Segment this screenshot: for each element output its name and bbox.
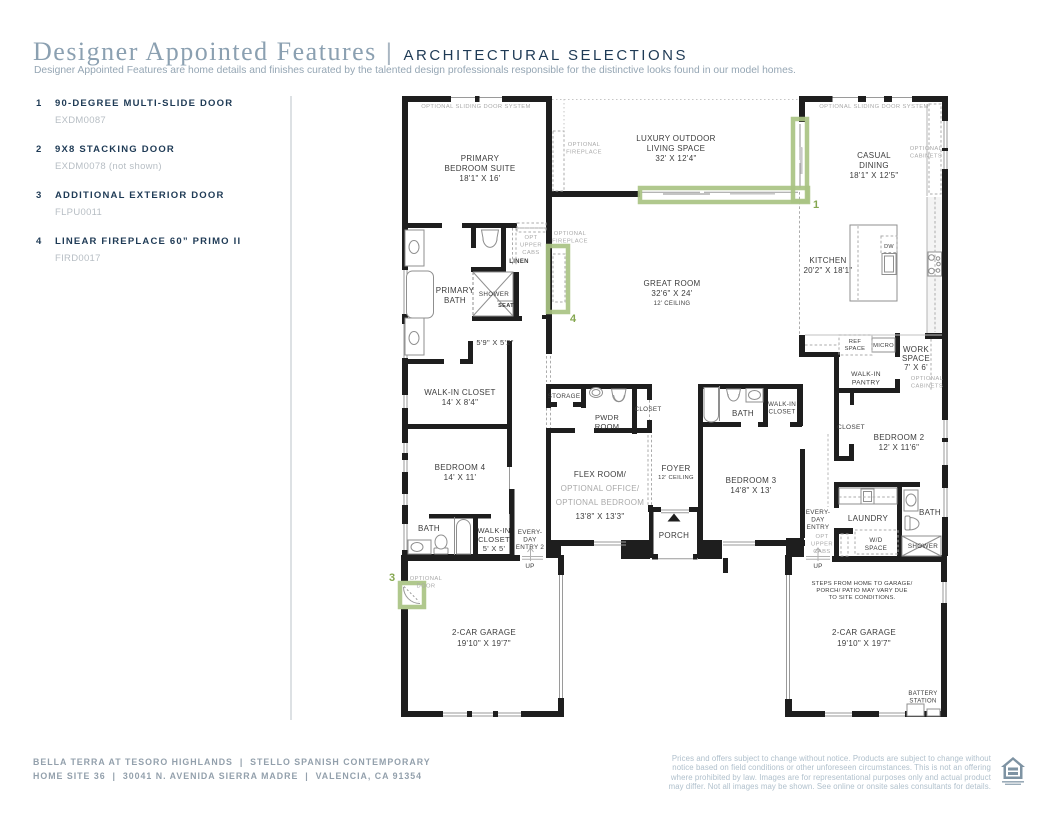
svg-text:19'10" X 19'7": 19'10" X 19'7" [837,639,891,648]
svg-text:5'9" X 5'2": 5'9" X 5'2" [476,338,513,347]
svg-text:OPTIONAL OFFICE/: OPTIONAL OFFICE/ [561,484,640,493]
svg-text:TO SITE CONDITIONS.: TO SITE CONDITIONS. [829,595,896,601]
svg-text:REF: REF [849,339,862,345]
svg-text:20'2" X 18'1": 20'2" X 18'1" [803,266,852,275]
svg-text:PORCH: PORCH [659,531,689,540]
svg-text:OPTIONAL SLIDING DOOR SYSTEM: OPTIONAL SLIDING DOOR SYSTEM [819,104,929,110]
svg-text:5' X 5': 5' X 5' [483,544,506,553]
svg-text:BATH: BATH [919,508,941,517]
svg-text:4: 4 [570,313,577,325]
svg-text:DAY: DAY [523,537,537,544]
svg-text:BEDROOM 3: BEDROOM 3 [726,476,777,485]
svg-text:SPACE: SPACE [902,354,930,363]
svg-text:SEAT: SEAT [498,303,514,309]
svg-text:DAY: DAY [811,517,825,524]
svg-text:CABS: CABS [813,549,830,555]
svg-text:EVERY-: EVERY- [518,529,543,536]
svg-text:PANTRY: PANTRY [852,380,881,387]
svg-text:2-CAR GARAGE: 2-CAR GARAGE [452,628,516,637]
svg-text:ENTRY 2: ENTRY 2 [516,544,545,551]
svg-text:DW: DW [884,244,894,250]
svg-text:CLOSET: CLOSET [635,406,662,413]
svg-text:UP: UP [525,563,534,570]
svg-text:BEDROOM SUITE: BEDROOM SUITE [444,164,515,173]
svg-text:FOYER: FOYER [661,464,690,473]
svg-text:MICRO: MICRO [873,343,894,349]
svg-text:PORCH/ PATIO MAY VARY DUE: PORCH/ PATIO MAY VARY DUE [816,588,907,594]
svg-text:UPPER: UPPER [520,243,542,249]
svg-text:STORAGE: STORAGE [548,393,581,400]
svg-text:OPTIONAL: OPTIONAL [410,576,443,582]
svg-text:PRIMARY: PRIMARY [461,154,500,163]
svg-text:OPTIONAL: OPTIONAL [911,376,944,382]
svg-text:OPT: OPT [524,235,537,241]
svg-text:32'6" X 24': 32'6" X 24' [651,289,692,298]
svg-text:WORK: WORK [903,345,929,354]
svg-text:SHOWER: SHOWER [479,291,509,298]
svg-text:UP: UP [813,563,822,570]
svg-text:W/D: W/D [869,537,882,544]
svg-text:WALK-IN CLOSET: WALK-IN CLOSET [424,388,495,397]
svg-text:14'8" X 13': 14'8" X 13' [730,486,771,495]
svg-text:7' X 6': 7' X 6' [904,363,928,372]
svg-text:2-CAR GARAGE: 2-CAR GARAGE [832,628,896,637]
svg-text:32' X 12'4": 32' X 12'4" [655,154,696,163]
svg-text:FIREPLACE: FIREPLACE [552,239,588,245]
svg-text:CABS: CABS [522,250,539,256]
svg-text:18'1" X 16': 18'1" X 16' [459,174,500,183]
svg-text:STATION: STATION [909,699,936,705]
svg-text:PRIMARY: PRIMARY [436,286,475,295]
svg-text:KITCHEN: KITCHEN [809,256,846,265]
svg-text:SPACE: SPACE [845,346,866,352]
svg-text:OPTIONAL BEDROOM: OPTIONAL BEDROOM [556,498,645,507]
svg-text:14' X 11': 14' X 11' [444,473,477,482]
svg-text:WALK-IN: WALK-IN [768,401,796,408]
svg-text:12' X 11'6": 12' X 11'6" [879,443,920,452]
svg-text:LINEN: LINEN [509,259,529,265]
svg-text:12' CEILING: 12' CEILING [654,301,691,307]
svg-text:ENTRY: ENTRY [807,524,830,531]
svg-text:CLOSET: CLOSET [837,424,865,431]
svg-text:BEDROOM 2: BEDROOM 2 [874,433,925,442]
svg-text:14' X 8'4": 14' X 8'4" [442,398,478,407]
svg-text:OPTIONAL SLIDING DOOR SYSTEM: OPTIONAL SLIDING DOOR SYSTEM [421,104,531,110]
svg-text:13'8" X 13'3": 13'8" X 13'3" [575,512,624,521]
svg-text:BATH: BATH [418,524,440,533]
svg-text:3: 3 [389,572,395,584]
svg-text:FLEX ROOM/: FLEX ROOM/ [574,470,627,479]
svg-text:GREAT ROOM: GREAT ROOM [644,279,701,288]
svg-text:ROOM: ROOM [595,422,620,431]
svg-text:CABINETS: CABINETS [911,384,943,390]
svg-text:OPTIONAL: OPTIONAL [554,231,587,237]
svg-text:CLOSET: CLOSET [478,535,510,544]
svg-text:OPTIONAL: OPTIONAL [568,142,601,148]
svg-text:DINING: DINING [859,161,889,170]
svg-text:FIREPLACE: FIREPLACE [566,150,602,156]
svg-text:LIVING SPACE: LIVING SPACE [647,144,706,153]
svg-text:18'1" X 12'5": 18'1" X 12'5" [849,171,898,180]
svg-text:CLOSET: CLOSET [769,409,796,416]
svg-text:EVERY-: EVERY- [806,509,831,516]
svg-text:WALK-IN: WALK-IN [477,526,510,535]
svg-text:CABINETS: CABINETS [910,154,942,160]
svg-text:1: 1 [813,199,819,211]
svg-text:BATH: BATH [444,296,466,305]
svg-text:DOOR: DOOR [417,584,436,590]
svg-text:PWDR: PWDR [595,413,619,422]
svg-text:SHOWER: SHOWER [908,543,938,550]
svg-text:BEDROOM 4: BEDROOM 4 [435,463,486,472]
svg-text:BATTERY: BATTERY [908,691,937,697]
svg-text:CASUAL: CASUAL [857,151,891,160]
svg-text:19'10" X 19'7": 19'10" X 19'7" [457,639,511,648]
svg-text:STEPS FROM HOME TO GARAGE/: STEPS FROM HOME TO GARAGE/ [812,581,913,587]
svg-text:UPPER: UPPER [811,542,833,548]
svg-text:OPTIONAL: OPTIONAL [910,146,943,152]
svg-text:LAUNDRY: LAUNDRY [848,514,889,523]
svg-text:12' CEILING: 12' CEILING [658,475,694,481]
svg-text:LUXURY OUTDOOR: LUXURY OUTDOOR [636,134,715,143]
svg-text:SPACE: SPACE [865,545,887,552]
svg-text:WALK-IN: WALK-IN [851,371,881,378]
svg-text:OPT: OPT [815,534,828,540]
svg-text:BATH: BATH [732,409,754,418]
